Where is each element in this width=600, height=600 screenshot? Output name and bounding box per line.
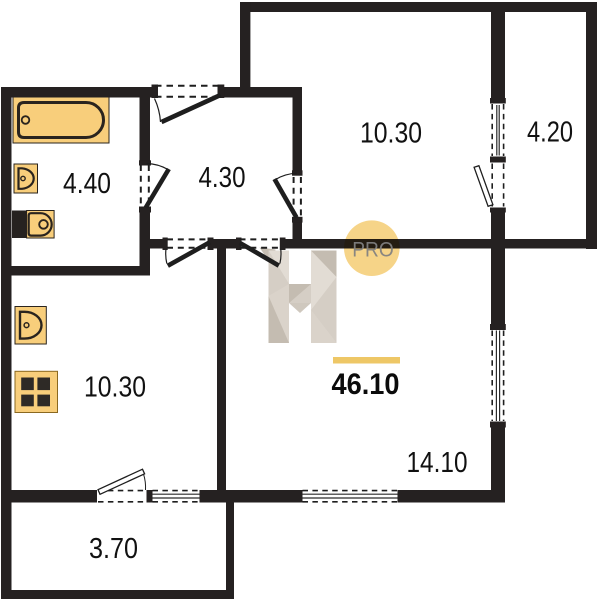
svg-text:3.70: 3.70	[89, 533, 138, 565]
svg-text:46.10: 46.10	[332, 368, 400, 401]
svg-text:4.40: 4.40	[63, 168, 111, 200]
svg-text:PRO: PRO	[352, 238, 394, 262]
svg-text:10.30: 10.30	[84, 372, 146, 404]
svg-text:10.30: 10.30	[360, 118, 422, 150]
svg-text:4.30: 4.30	[199, 162, 246, 194]
svg-text:4.20: 4.20	[527, 117, 573, 149]
svg-text:14.10: 14.10	[407, 447, 468, 479]
